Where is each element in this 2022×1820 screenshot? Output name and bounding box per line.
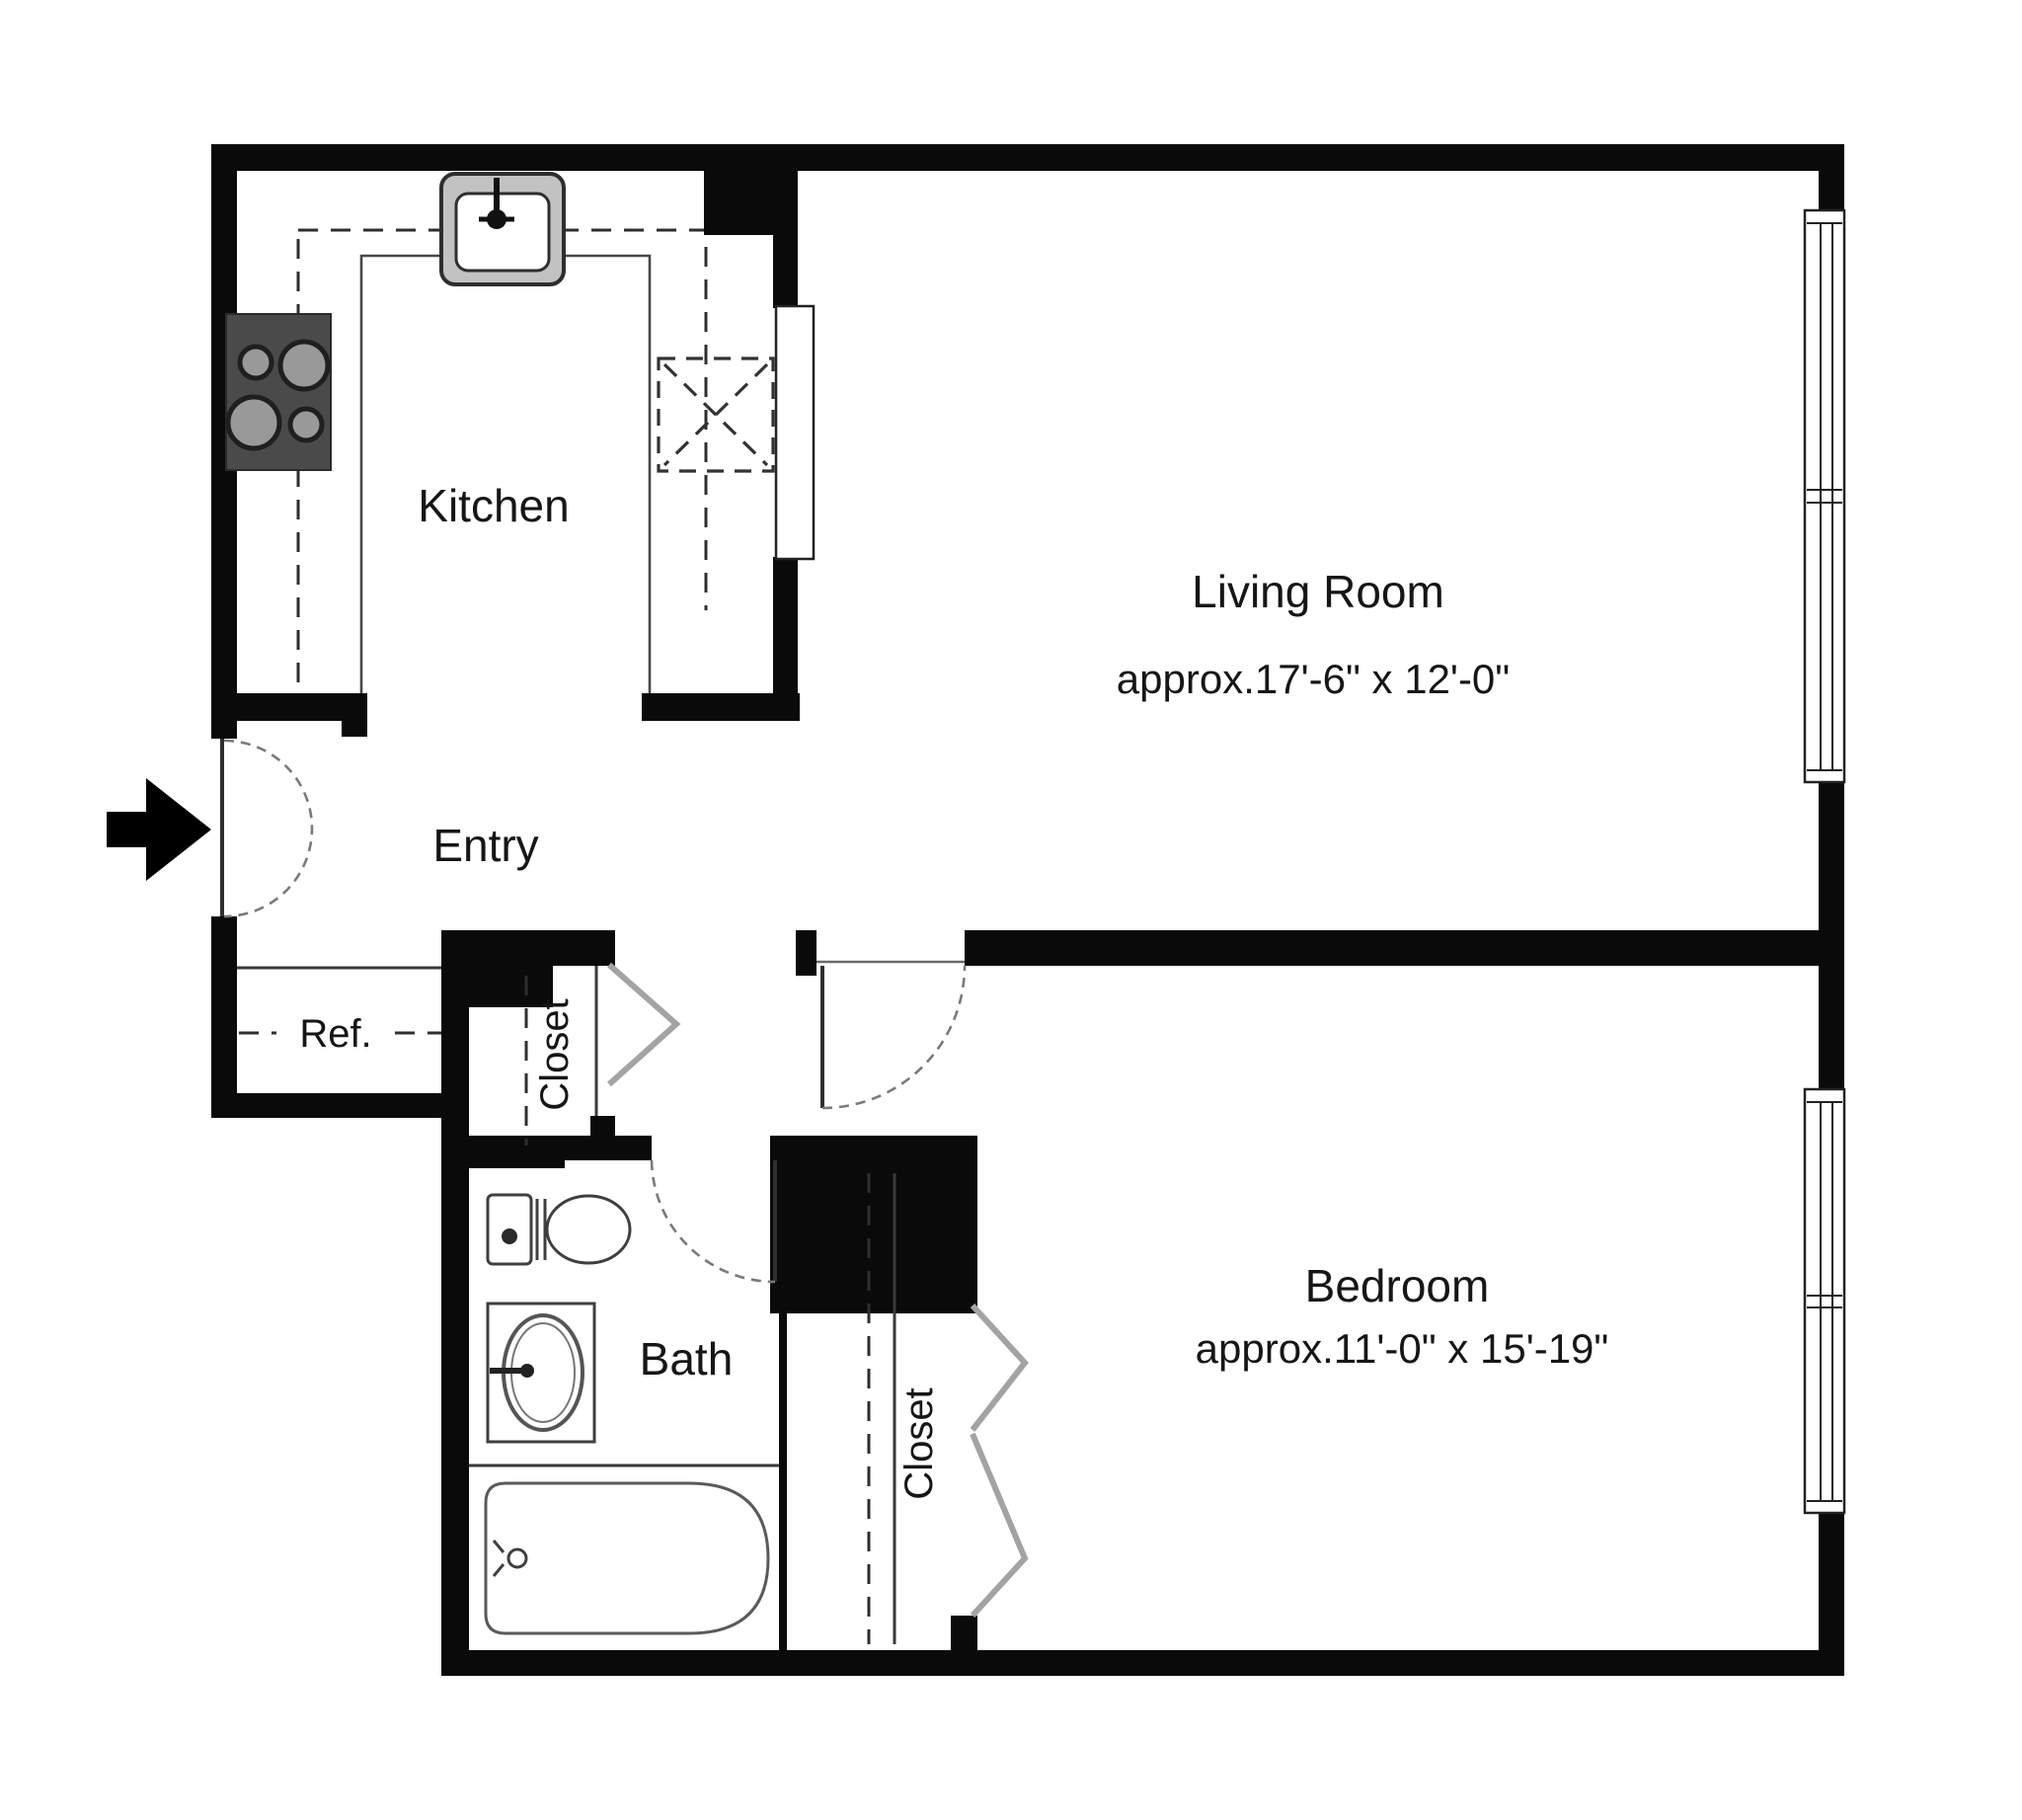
living-room-label: Living Room [1192, 566, 1444, 617]
bedroom-door-arc [822, 966, 965, 1108]
dishwasher-dashed-box-icon [659, 358, 773, 471]
counter-front-edge [361, 256, 650, 693]
wall-bedroom-closet-bottom-nub [951, 1616, 977, 1650]
living-room-window-icon [1805, 210, 1844, 782]
entry-area [107, 739, 312, 916]
bedroom-window-icon [1805, 1089, 1844, 1513]
bedroom-door [817, 962, 965, 1108]
kitchen-label: Kitchen [418, 480, 569, 531]
bedroom-closet-label: Closet [897, 1387, 941, 1499]
wall-right-upper [1819, 144, 1844, 212]
wall-entry-closet-corner-block [441, 930, 553, 1007]
living-room-dimensions: approx.17'-6" x 12'-0" [1117, 656, 1510, 702]
wall-bath-left [441, 930, 469, 1676]
cooktop-icon [226, 314, 331, 470]
refrigerator-label: Ref. [299, 1012, 371, 1056]
bathtub-icon [486, 1483, 768, 1633]
entry-closet-label: Closet [533, 998, 577, 1110]
entry-label: Entry [432, 820, 538, 871]
wall-left-lower [211, 916, 237, 1118]
wall-right-middle [1819, 780, 1844, 1091]
pass-through-icon [776, 306, 814, 559]
wall-right-lower [1819, 1511, 1844, 1676]
entry-door-arc [224, 741, 312, 916]
wall-hall-corner-block [770, 1136, 977, 1313]
toilet-icon [488, 1195, 630, 1264]
bath-door-arc [652, 1160, 775, 1282]
kitchen-sink-icon [441, 174, 564, 284]
bath-area [469, 1160, 779, 1633]
wall-bedroom-divider-left-cap [796, 930, 817, 976]
floor-plan-drawing: Kitchen Living Room approx.17'-6" x 12'-… [0, 0, 2022, 1820]
wall-bottom [441, 1650, 1844, 1676]
wall-bath-top [457, 1136, 652, 1160]
floor-plan-canvas: Kitchen Living Room approx.17'-6" x 12'-… [0, 0, 2022, 1820]
bedroom-label: Bedroom [1305, 1260, 1490, 1311]
bedroom-closet-bifold-lower-icon [972, 1434, 1025, 1616]
wall-ref-nook-bottom [211, 1093, 458, 1118]
wall-kitchen-divider-upper [773, 235, 798, 308]
wall-kitchen-bottom-left-nub [342, 721, 367, 737]
kitchen-area [226, 174, 814, 693]
bath-label: Bath [640, 1333, 734, 1385]
wall-bedroom-divider [965, 930, 1820, 966]
bedroom-closet-bifold-upper-icon [972, 1306, 1025, 1430]
wall-kitchen-bottom-right [642, 693, 800, 721]
wall-kitchen-divider-lower [773, 557, 798, 695]
entrance-arrow-icon [107, 778, 211, 881]
vanity-sink-icon [488, 1304, 594, 1442]
wall-top [211, 144, 1844, 171]
wall-kitchen-lr-corner-block [704, 144, 798, 235]
wall-bath-closet-separator [779, 1313, 787, 1650]
bedroom-dimensions: approx.11'-0" x 15'-19" [1196, 1325, 1609, 1372]
entry-closet-bifold-door-icon [609, 965, 676, 1084]
